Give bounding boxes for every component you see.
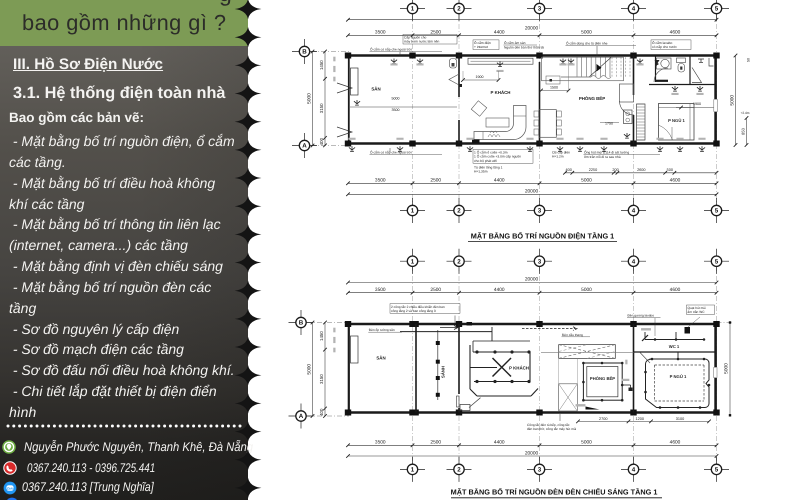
svg-text:850: 850 [741, 127, 746, 134]
svg-text:20000: 20000 [525, 188, 539, 194]
svg-text:Ổ cắm có nắp che ngoài trời: Ổ cắm có nắp che ngoài trời [370, 48, 412, 52]
svg-text:P NGỦ 1: P NGỦ 1 [670, 374, 687, 379]
svg-text:H=1,35m: H=1,35m [474, 170, 488, 174]
svg-text:2250: 2250 [589, 168, 597, 172]
svg-text:4600: 4600 [670, 178, 681, 184]
svg-text:3500: 3500 [375, 287, 386, 293]
svg-text:công tầng 2 và ban công tầng 3: công tầng 2 và ban công tầng 3 [391, 309, 436, 313]
svg-text:1500: 1500 [550, 86, 558, 90]
svg-text:WC 1: WC 1 [669, 344, 680, 349]
svg-text:5000: 5000 [307, 364, 313, 375]
svg-text:4: 4 [632, 258, 636, 265]
svg-text:50: 50 [747, 58, 751, 62]
svg-text:Ống hút mùi D114 đi sát tường: Ống hút mùi D114 đi sát tường [584, 151, 629, 155]
svg-text:P KHÁCH: P KHÁCH [491, 90, 511, 95]
svg-text:4: 4 [632, 208, 636, 215]
svg-text:H=1.2m: H=1.2m [552, 155, 564, 159]
svg-text:3: 3 [538, 208, 542, 215]
svg-text:5: 5 [715, 6, 719, 13]
svg-text:Đèn gương lavabo: Đèn gương lavabo [628, 314, 655, 318]
svg-text:1900: 1900 [693, 102, 701, 106]
svg-text:đèn ban thờ, công tắc máy hút: đèn ban thờ, công tắc máy hút mùi [527, 427, 577, 431]
svg-text:Đèn cầu thang: Đèn cầu thang [562, 333, 583, 337]
svg-text:1750: 1750 [605, 122, 613, 126]
svg-text:4: 4 [632, 6, 636, 13]
svg-text:máy bơm nước làm nền: máy bơm nước làm nền [404, 40, 439, 44]
svg-text:Ổ cắm dùng cho tủ điện nhẹ: Ổ cắm dùng cho tủ điện nhẹ [566, 42, 608, 46]
svg-text:400: 400 [319, 137, 324, 145]
svg-text:MẶT BẰNG BỐ TRÍ NGUỒN ĐÈN ĐÈN: MẶT BẰNG BỐ TRÍ NGUỒN ĐÈN ĐÈN CHIẾU SÁNG… [451, 488, 658, 497]
svg-text:200: 200 [612, 168, 618, 172]
svg-text:3: 3 [538, 467, 542, 474]
svg-text:1: 1 [411, 208, 415, 215]
svg-text:âm trần WC: âm trần WC [688, 310, 706, 314]
svg-text:5000: 5000 [730, 95, 736, 106]
svg-text:500: 500 [667, 168, 673, 172]
svg-text:5: 5 [715, 258, 719, 265]
svg-text:1900: 1900 [476, 75, 484, 79]
svg-text:2: 2 [457, 208, 461, 215]
svg-text:SẢNH: SẢNH [441, 366, 446, 378]
svg-text:3500: 3500 [375, 440, 386, 446]
svg-text:SÂN: SÂN [371, 87, 380, 92]
svg-text:B: B [302, 49, 307, 56]
svg-text:5000: 5000 [581, 30, 592, 36]
svg-text:P NGỦ 1: P NGỦ 1 [668, 118, 685, 123]
svg-text:2500: 2500 [430, 287, 441, 293]
svg-text:20000: 20000 [525, 25, 539, 31]
svg-text:5000: 5000 [581, 178, 592, 184]
svg-text:MẶT BẰNG BỐ TRÍ NGUỒN ĐIỆN TẦN: MẶT BẰNG BỐ TRÍ NGUỒN ĐIỆN TẦNG 1 [471, 231, 615, 240]
svg-text:3500: 3500 [375, 30, 386, 36]
svg-text:4: 4 [632, 467, 636, 474]
svg-text:B: B [299, 320, 304, 327]
svg-text:5000: 5000 [307, 93, 313, 104]
svg-text:A: A [302, 143, 307, 150]
svg-text:Đèn ốp tường sân: Đèn ốp tường sân [369, 328, 395, 332]
svg-text:400: 400 [565, 168, 571, 172]
svg-text:3: 3 [538, 6, 542, 13]
svg-text:1: 1 [411, 6, 415, 13]
svg-text:3: 3 [538, 258, 542, 265]
svg-text:2500: 2500 [430, 440, 441, 446]
svg-text:+2.4m: +2.4m [741, 111, 750, 115]
svg-text:3100: 3100 [676, 417, 684, 421]
svg-text:3500: 3500 [375, 178, 386, 184]
svg-text:có nắp cho nước: có nắp cho nước [652, 45, 677, 49]
svg-text:2700: 2700 [599, 417, 607, 421]
svg-text:20000: 20000 [525, 276, 539, 282]
svg-text:2600: 2600 [637, 168, 645, 172]
svg-text:400: 400 [319, 408, 324, 416]
svg-text:P KHÁCH: P KHÁCH [509, 366, 529, 371]
svg-text:SÂN: SÂN [376, 356, 385, 361]
svg-text:3500: 3500 [392, 108, 400, 112]
svg-text:3150: 3150 [319, 374, 324, 384]
svg-text:1200: 1200 [636, 417, 644, 421]
svg-text:PHÒNG BẾP: PHÒNG BẾP [579, 96, 605, 101]
svg-text:5: 5 [715, 208, 719, 215]
svg-text:2: 2 [457, 467, 461, 474]
svg-text:lớn trần nổi đi ra sau nhà: lớn trần nổi đi ra sau nhà [584, 155, 621, 159]
svg-text:5000: 5000 [392, 97, 400, 101]
svg-text:2: 2 [457, 258, 461, 265]
svg-text:1450: 1450 [319, 331, 324, 341]
svg-text:4600: 4600 [670, 440, 681, 446]
svg-text:4400: 4400 [494, 440, 505, 446]
svg-text:A: A [299, 413, 304, 420]
svg-text:4600: 4600 [670, 30, 681, 36]
svg-text:+ internet: + internet [474, 45, 488, 49]
svg-text:Ổ cắm có nắp che ngoài trời: Ổ cắm có nắp che ngoài trời [370, 151, 412, 155]
svg-text:1: 1 [411, 258, 415, 265]
svg-text:5000: 5000 [581, 440, 592, 446]
svg-text:2500: 2500 [430, 178, 441, 184]
svg-text:Ổ cắm âm sàn: Ổ cắm âm sàn [504, 41, 526, 45]
svg-text:4400: 4400 [494, 287, 505, 293]
svg-text:4400: 4400 [494, 30, 505, 36]
svg-text:4400: 4400 [494, 178, 505, 184]
svg-text:1: 1 [411, 467, 415, 474]
svg-text:5000: 5000 [724, 363, 730, 374]
svg-text:PHÒNG BẾP: PHÒNG BẾP [590, 376, 615, 381]
svg-text:1450: 1450 [319, 60, 324, 70]
svg-text:Nguồn đèn bàn thờ thần tài: Nguồn đèn bàn thờ thần tài [504, 46, 544, 50]
svg-text:2: 2 [457, 6, 461, 13]
svg-text:5000: 5000 [581, 287, 592, 293]
svg-text:5: 5 [715, 467, 719, 474]
svg-text:3150: 3150 [319, 103, 324, 113]
svg-text:4600: 4600 [670, 287, 681, 293]
svg-text:20000: 20000 [525, 450, 539, 456]
svg-text:2500: 2500 [430, 30, 441, 36]
svg-text:cho bộ phát wifi: cho bộ phát wifi [474, 159, 497, 163]
